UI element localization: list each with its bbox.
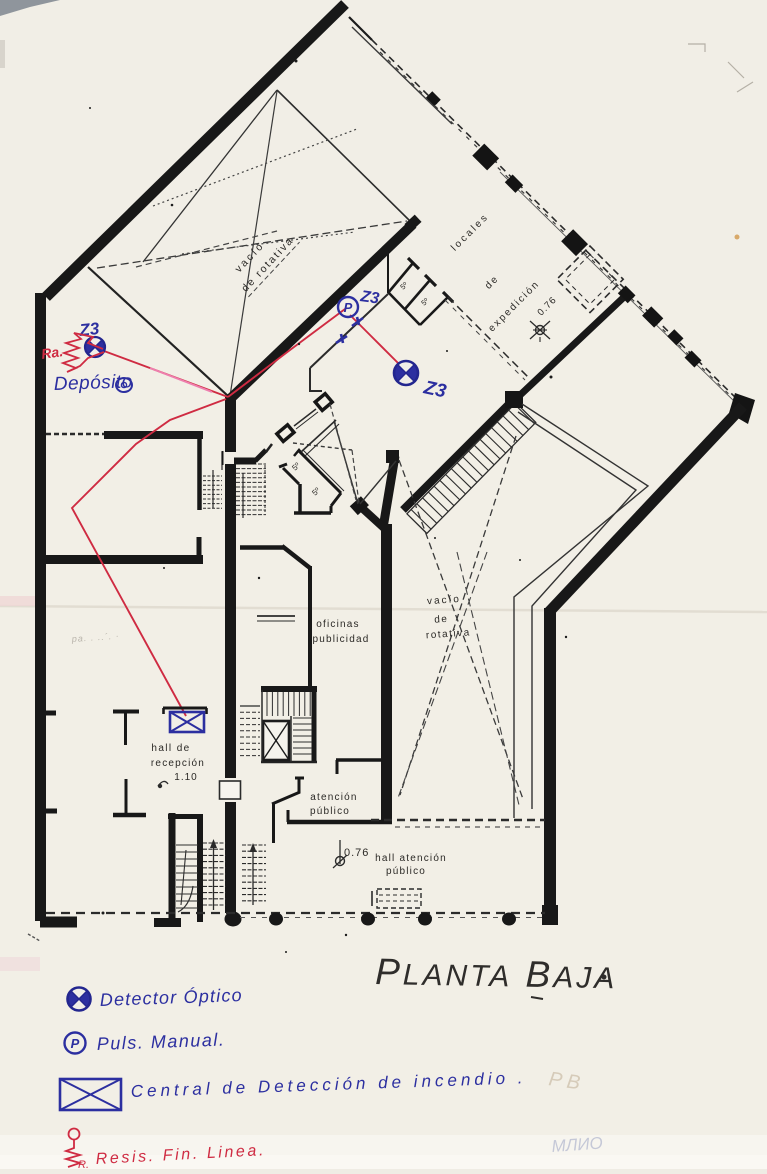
svg-text:МЛИО: МЛИО bbox=[551, 1133, 603, 1156]
svg-text:de: de bbox=[434, 614, 449, 626]
svg-text:0.76: 0.76 bbox=[344, 847, 369, 859]
svg-text:P B: P B bbox=[547, 1068, 581, 1094]
svg-text:P: P bbox=[71, 1036, 80, 1051]
svg-text:atención: atención bbox=[310, 792, 357, 803]
svg-text:Rа.: Rа. bbox=[40, 343, 64, 362]
svg-text:hall de: hall de bbox=[151, 743, 190, 754]
svg-text:P: P bbox=[344, 300, 353, 315]
svg-text:publicidad: publicidad bbox=[312, 634, 369, 645]
svg-text:oficinas: oficinas bbox=[316, 619, 360, 630]
svg-text:R.: R. bbox=[78, 1159, 89, 1169]
svg-text:1.10: 1.10 bbox=[174, 772, 197, 783]
svg-text:hall atención: hall atención bbox=[375, 853, 447, 864]
svg-text:Z3: Z3 bbox=[358, 288, 380, 308]
svg-text:público: público bbox=[310, 806, 350, 817]
svg-text:público: público bbox=[386, 866, 426, 877]
svg-text:recepción: recepción bbox=[151, 758, 205, 769]
